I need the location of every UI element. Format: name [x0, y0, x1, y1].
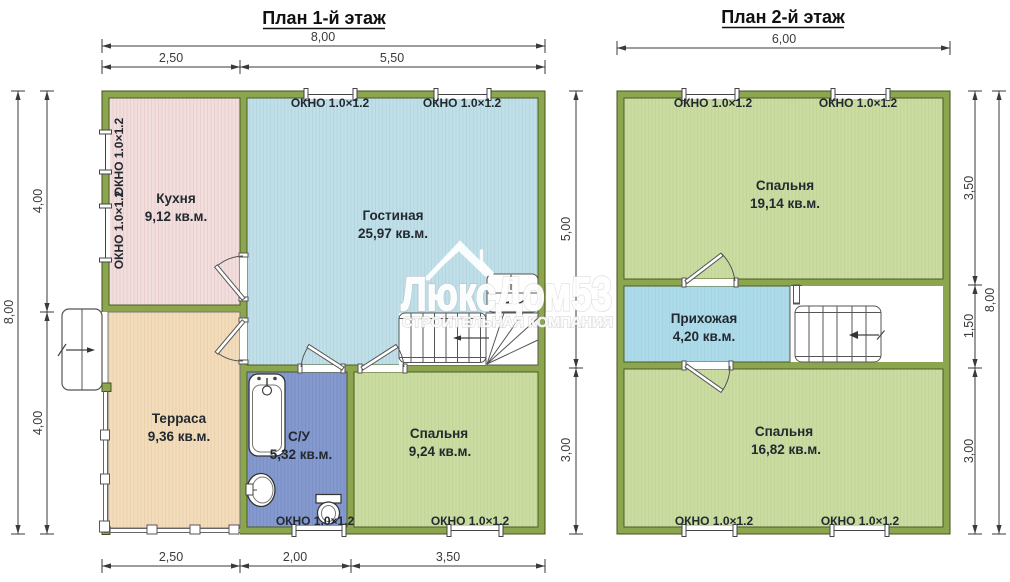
- svg-text:3,50: 3,50: [436, 550, 460, 564]
- svg-text:СТРОИТЕЛЬНАЯ КОМПАНИЯ: СТРОИТЕЛЬНАЯ КОМПАНИЯ: [402, 315, 613, 331]
- svg-text:План 1-й этаж: План 1-й этаж: [262, 8, 386, 28]
- svg-text:ЛюксДом53: ЛюксДом53: [401, 267, 612, 320]
- svg-text:6,00: 6,00: [772, 32, 796, 46]
- svg-text:3,00: 3,00: [559, 438, 573, 462]
- svg-text:Кухня: Кухня: [156, 191, 195, 206]
- svg-text:ОКНО 1.0×1.2: ОКНО 1.0×1.2: [276, 514, 355, 528]
- svg-text:4,20 кв.м.: 4,20 кв.м.: [673, 329, 736, 344]
- svg-text:ОКНО 1.0×1.2: ОКНО 1.0×1.2: [821, 514, 900, 528]
- svg-text:ОКНО 1.0×1.2: ОКНО 1.0×1.2: [112, 190, 126, 269]
- svg-text:План 2-й этаж: План 2-й этаж: [721, 7, 845, 27]
- svg-text:8,00: 8,00: [2, 300, 16, 324]
- svg-text:5,00: 5,00: [559, 217, 573, 241]
- svg-text:Спальня: Спальня: [410, 426, 468, 441]
- svg-text:4,00: 4,00: [31, 411, 45, 435]
- svg-text:ОКНО 1.0×1.2: ОКНО 1.0×1.2: [819, 96, 898, 110]
- svg-text:2,50: 2,50: [159, 550, 183, 564]
- svg-text:16,82 кв.м.: 16,82 кв.м.: [751, 442, 821, 457]
- svg-text:Прихожая: Прихожая: [671, 311, 738, 326]
- svg-text:1,50: 1,50: [962, 314, 976, 338]
- svg-text:5,32 кв.м.: 5,32 кв.м.: [270, 447, 333, 462]
- svg-text:2,00: 2,00: [283, 550, 307, 564]
- svg-text:ОКНО 1.0×1.2: ОКНО 1.0×1.2: [674, 96, 753, 110]
- svg-text:Спальня: Спальня: [755, 424, 813, 439]
- svg-text:9,36 кв.м.: 9,36 кв.м.: [148, 429, 211, 444]
- svg-text:ОКНО 1.0×1.2: ОКНО 1.0×1.2: [675, 514, 754, 528]
- svg-text:ОКНО 1.0×1.2: ОКНО 1.0×1.2: [291, 96, 370, 110]
- svg-text:4,00: 4,00: [31, 189, 45, 213]
- svg-text:ОКНО 1.0×1.2: ОКНО 1.0×1.2: [423, 96, 502, 110]
- svg-text:3,00: 3,00: [962, 439, 976, 463]
- svg-text:С/У: С/У: [288, 429, 311, 444]
- svg-text:ОКНО 1.0×1.2: ОКНО 1.0×1.2: [112, 117, 126, 196]
- svg-text:5,50: 5,50: [380, 51, 404, 65]
- svg-text:3,50: 3,50: [962, 176, 976, 200]
- svg-text:Терраса: Терраса: [152, 411, 207, 426]
- svg-text:25,97 кв.м.: 25,97 кв.м.: [358, 226, 428, 241]
- svg-text:9,12 кв.м.: 9,12 кв.м.: [145, 209, 208, 224]
- svg-text:Гостиная: Гостиная: [362, 208, 423, 223]
- svg-text:ОКНО 1.0×1.2: ОКНО 1.0×1.2: [431, 514, 510, 528]
- svg-text:2,50: 2,50: [159, 51, 183, 65]
- svg-text:Спальня: Спальня: [756, 178, 814, 193]
- svg-text:8,00: 8,00: [311, 30, 335, 44]
- svg-text:8,00: 8,00: [983, 288, 997, 312]
- svg-text:19,14 кв.м.: 19,14 кв.м.: [750, 196, 820, 211]
- svg-text:9,24 кв.м.: 9,24 кв.м.: [409, 444, 472, 459]
